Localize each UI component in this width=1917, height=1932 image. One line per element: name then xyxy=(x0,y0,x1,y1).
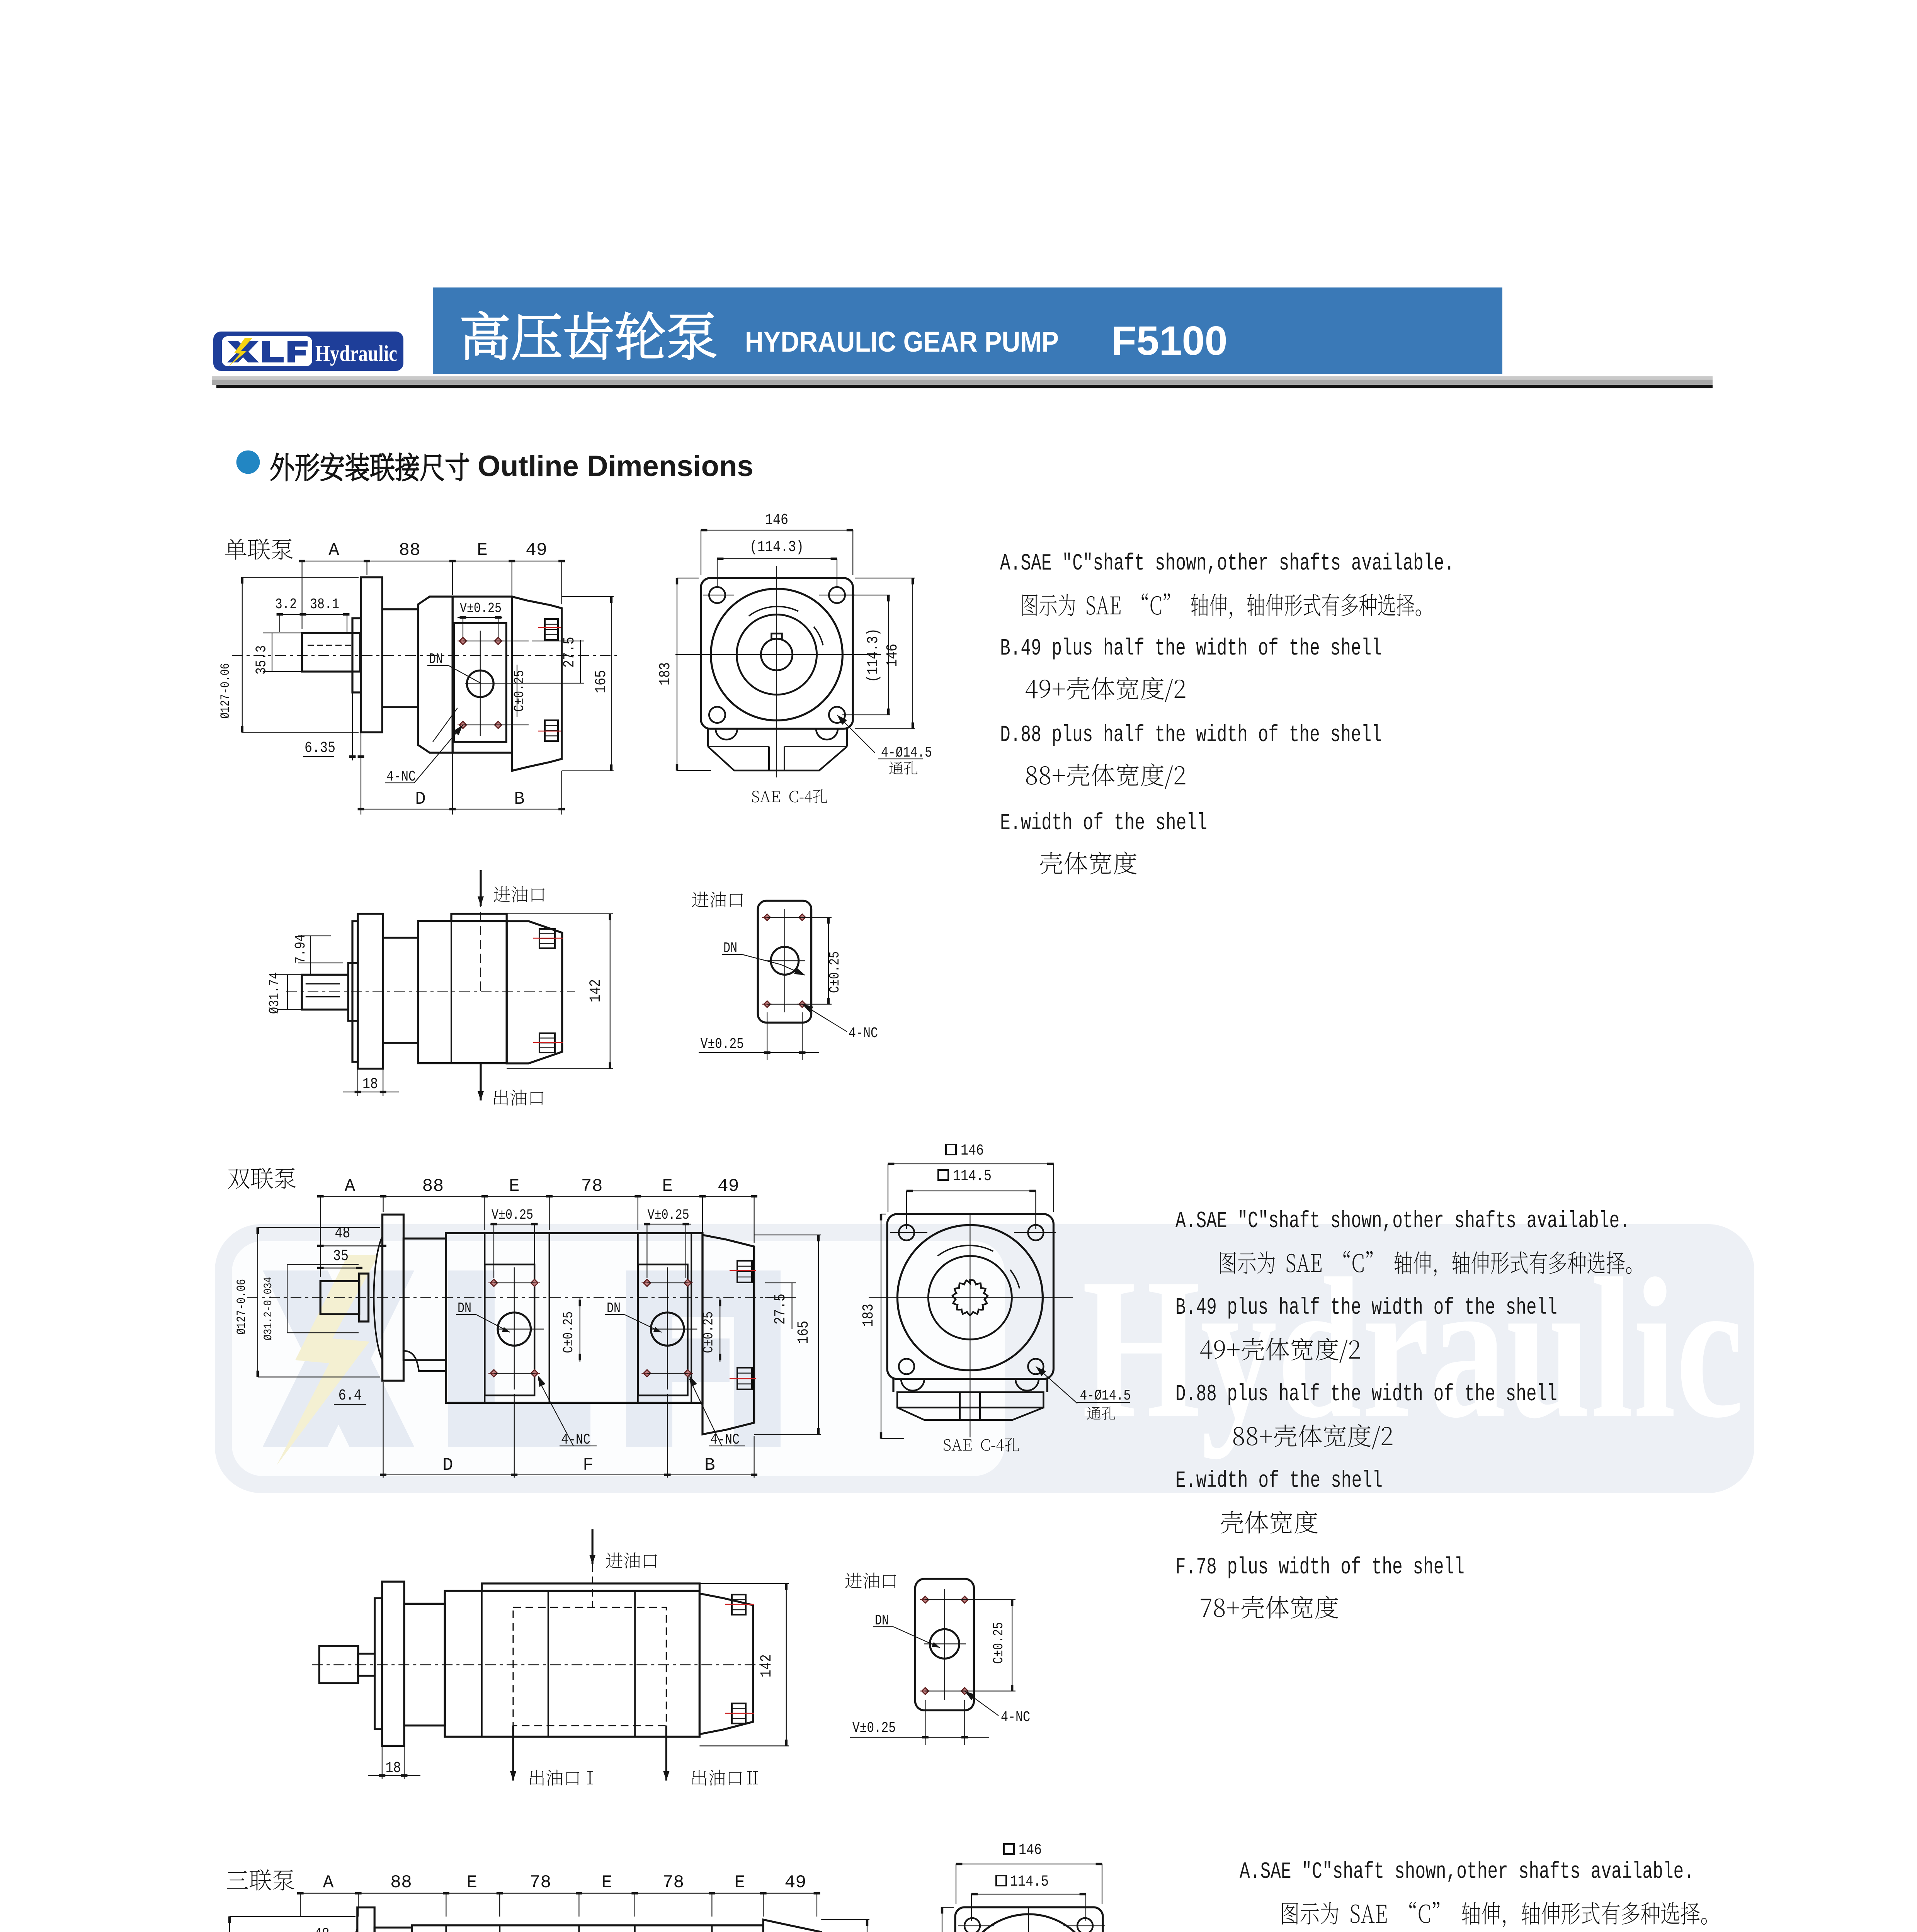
svg-text:A.SAE "C"shaft shown,other sha: A.SAE "C"shaft shown,other shafts availa… xyxy=(1175,1208,1630,1235)
svg-text:49: 49 xyxy=(526,540,547,560)
svg-text:C±0.25: C±0.25 xyxy=(827,951,843,993)
svg-text:Ø127-0.06: Ø127-0.06 xyxy=(235,1279,249,1335)
svg-text:F: F xyxy=(583,1455,594,1475)
svg-text:146: 146 xyxy=(765,512,788,529)
svg-text:4-NC: 4-NC xyxy=(1001,1709,1030,1726)
svg-text:DN: DN xyxy=(757,1930,771,1932)
svg-text:Ø31.2-0.034: Ø31.2-0.034 xyxy=(262,1277,275,1340)
svg-text:18: 18 xyxy=(386,1760,401,1777)
svg-text:B: B xyxy=(704,1455,715,1475)
svg-text:146: 146 xyxy=(961,1142,984,1160)
svg-text:114.5: 114.5 xyxy=(1010,1873,1049,1891)
svg-text:B: B xyxy=(514,789,525,809)
svg-text:Ø127-0.06: Ø127-0.06 xyxy=(218,663,233,719)
svg-text:A.SAE "C"shaft shown,other sha: A.SAE "C"shaft shown,other shafts availa… xyxy=(1240,1859,1694,1885)
svg-text:E: E xyxy=(662,1176,673,1196)
svg-text:B.49 plus half the width of th: B.49 plus half the width of the shell xyxy=(1000,636,1382,662)
svg-text:165: 165 xyxy=(593,670,610,693)
svg-text:27.5: 27.5 xyxy=(772,1294,789,1325)
svg-text:V±0.25: V±0.25 xyxy=(852,1720,896,1736)
svg-text:A: A xyxy=(345,1176,356,1196)
svg-text:Ø31.74: Ø31.74 xyxy=(267,972,282,1014)
svg-text:6.35: 6.35 xyxy=(304,740,335,757)
svg-text:38.1: 38.1 xyxy=(310,596,339,613)
svg-text:78: 78 xyxy=(581,1176,603,1196)
svg-text:C±0.25: C±0.25 xyxy=(561,1311,577,1353)
svg-text:4-Ø14.5: 4-Ø14.5 xyxy=(1080,1388,1131,1404)
svg-text:HYDRAULIC GEAR PUMP: HYDRAULIC GEAR PUMP xyxy=(745,326,1059,358)
svg-text:27.5: 27.5 xyxy=(561,637,578,668)
svg-text:49: 49 xyxy=(784,1872,806,1893)
svg-text:C±0.25: C±0.25 xyxy=(991,1622,1007,1664)
svg-text:E.width of the shell: E.width of the shell xyxy=(1175,1468,1383,1494)
svg-text:18: 18 xyxy=(362,1076,378,1093)
svg-text:Hydraulic: Hydraulic xyxy=(1082,1237,1744,1460)
svg-text:48: 48 xyxy=(314,1926,330,1932)
svg-text:A: A xyxy=(323,1872,334,1893)
svg-text:V±0.25: V±0.25 xyxy=(648,1207,689,1223)
svg-text:88: 88 xyxy=(422,1176,444,1196)
svg-text:Outline Dimensions: Outline Dimensions xyxy=(478,450,754,483)
svg-text:E: E xyxy=(602,1872,612,1893)
svg-text:A: A xyxy=(328,540,339,560)
svg-text:142: 142 xyxy=(758,1654,776,1677)
svg-text:146: 146 xyxy=(884,644,902,667)
svg-text:D: D xyxy=(415,789,426,809)
svg-text:V±0.25: V±0.25 xyxy=(701,1036,744,1053)
svg-text:146: 146 xyxy=(1019,1842,1042,1859)
svg-text:A.SAE "C"shaft shown,other sha: A.SAE "C"shaft shown,other shafts availa… xyxy=(1000,551,1454,577)
svg-text:(114.3): (114.3) xyxy=(750,539,804,556)
svg-text:35: 35 xyxy=(333,1248,349,1265)
svg-text:114.5: 114.5 xyxy=(953,1168,992,1185)
svg-text:183: 183 xyxy=(860,1304,878,1327)
svg-text:D.88 plus half the width of th: D.88 plus half the width of the shell xyxy=(1000,722,1382,748)
svg-text:F.78 plus width of the shell: F.78 plus width of the shell xyxy=(1175,1554,1465,1581)
svg-text:78: 78 xyxy=(529,1872,551,1893)
svg-text:7.94: 7.94 xyxy=(293,934,309,964)
svg-text:C±0.25: C±0.25 xyxy=(512,670,527,712)
svg-text:E: E xyxy=(477,540,488,560)
svg-text:88: 88 xyxy=(399,540,420,560)
svg-text:E: E xyxy=(509,1176,520,1196)
svg-text:3.2: 3.2 xyxy=(275,596,297,613)
svg-text:B.49 plus half the width of th: B.49 plus half the width of the shell xyxy=(1175,1295,1557,1321)
svg-text:Hydraulic: Hydraulic xyxy=(315,341,397,366)
svg-text:F5100: F5100 xyxy=(1111,318,1228,364)
svg-text:4-NC: 4-NC xyxy=(849,1025,878,1042)
svg-text:(114.3): (114.3) xyxy=(865,628,882,682)
svg-text:183: 183 xyxy=(657,662,674,685)
svg-text:D.88 plus half the width of th: D.88 plus half the width of the shell xyxy=(1175,1381,1557,1408)
svg-text:142: 142 xyxy=(587,979,605,1002)
svg-text:D: D xyxy=(442,1455,453,1475)
svg-text:C±0.25: C±0.25 xyxy=(701,1311,717,1353)
svg-text:E: E xyxy=(735,1872,745,1893)
svg-text:48: 48 xyxy=(335,1225,350,1242)
svg-text:V±0.25: V±0.25 xyxy=(492,1207,533,1223)
svg-text:88: 88 xyxy=(390,1872,412,1893)
svg-text:35.3: 35.3 xyxy=(253,645,270,675)
svg-text:E.width of the shell: E.width of the shell xyxy=(1000,810,1207,837)
svg-text:V±0.25: V±0.25 xyxy=(460,600,502,616)
svg-text:78: 78 xyxy=(662,1872,684,1893)
svg-text:6.4: 6.4 xyxy=(338,1387,362,1405)
svg-text:49: 49 xyxy=(718,1176,739,1196)
svg-text:E: E xyxy=(466,1872,477,1893)
svg-text:165: 165 xyxy=(795,1321,813,1344)
